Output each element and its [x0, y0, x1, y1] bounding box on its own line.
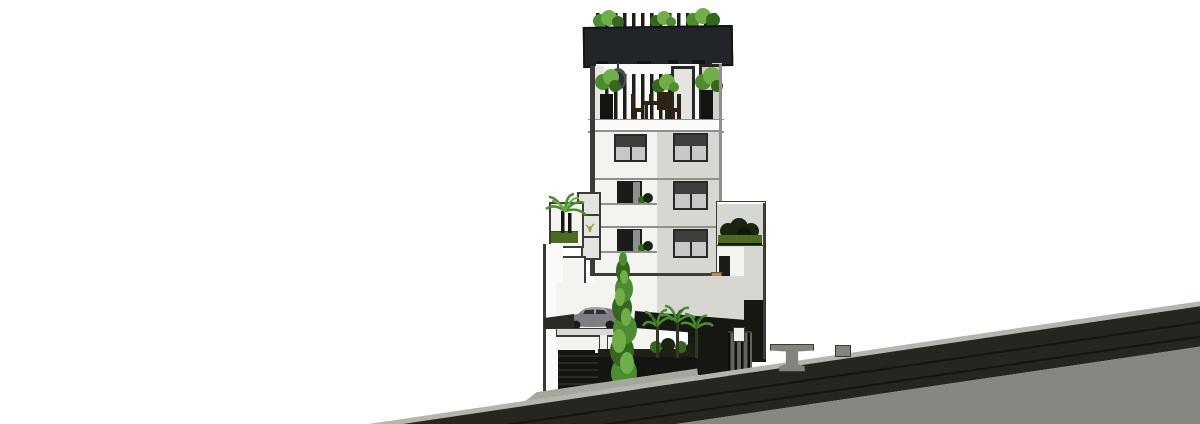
architectural-elevation-render [0, 0, 1200, 424]
terrace-planter-left [600, 94, 613, 121]
floor-slab-line [595, 226, 720, 228]
concrete-block-small [835, 345, 851, 357]
window [673, 133, 708, 162]
rightwing-outer-edge [763, 203, 766, 359]
floor-slab-line [595, 130, 720, 132]
tower-right-edge [719, 64, 722, 204]
balcony-parapet-line [595, 203, 657, 205]
window [673, 229, 708, 258]
gate-post-cap [733, 327, 745, 342]
side-palm-tree [544, 189, 588, 235]
ramp-wedge [544, 312, 574, 329]
palm-trees [643, 300, 713, 360]
floor-slab-line [595, 178, 720, 180]
terrace-planter-right [701, 90, 713, 121]
sloped-road [348, 278, 1200, 424]
terrace-planter-mid [657, 92, 671, 110]
window [673, 181, 708, 210]
window [614, 134, 647, 162]
rightwing-grass-strip [718, 235, 762, 245]
cypress-tree [602, 253, 646, 389]
